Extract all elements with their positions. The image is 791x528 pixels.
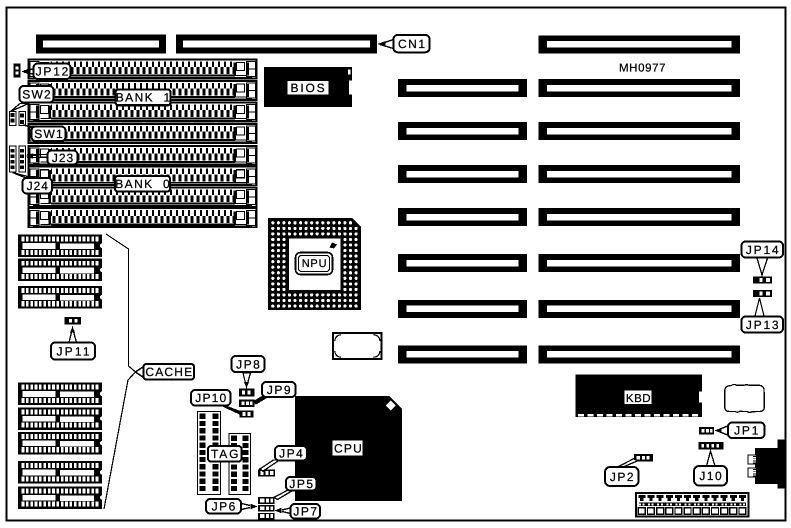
svg-text:JP10: JP10 [195, 391, 227, 405]
svg-text:SW1: SW1 [34, 127, 64, 141]
svg-text:JP4: JP4 [279, 447, 304, 461]
svg-text:JP6: JP6 [212, 500, 237, 514]
svg-text:BANK 0: BANK 0 [115, 177, 171, 191]
svg-text:JP1: JP1 [734, 424, 760, 438]
svg-text:JP9: JP9 [267, 383, 292, 397]
svg-text:JP11: JP11 [56, 344, 91, 358]
svg-text:JP12: JP12 [36, 65, 71, 79]
svg-text:JP2: JP2 [610, 470, 635, 484]
svg-text:J23: J23 [52, 151, 74, 165]
svg-text:CPU: CPU [334, 442, 363, 456]
svg-text:KBD: KBD [626, 393, 651, 405]
svg-text:CN1: CN1 [398, 37, 427, 51]
svg-text:MH0977: MH0977 [619, 63, 666, 75]
svg-text:BIOS: BIOS [291, 81, 327, 95]
svg-text:JP8: JP8 [236, 357, 261, 371]
svg-text:JP7: JP7 [293, 505, 318, 519]
svg-text:TAG: TAG [211, 447, 240, 461]
svg-text:NPU: NPU [302, 258, 328, 270]
svg-text:JP5: JP5 [289, 477, 314, 491]
svg-text:J24: J24 [27, 179, 49, 193]
svg-text:JP13: JP13 [746, 318, 781, 332]
svg-text:BANK 1: BANK 1 [116, 91, 172, 105]
svg-text:SW2: SW2 [22, 88, 52, 102]
svg-text:CACHE: CACHE [145, 365, 193, 379]
svg-text:J10: J10 [699, 469, 723, 483]
svg-text:JP14: JP14 [746, 243, 781, 257]
